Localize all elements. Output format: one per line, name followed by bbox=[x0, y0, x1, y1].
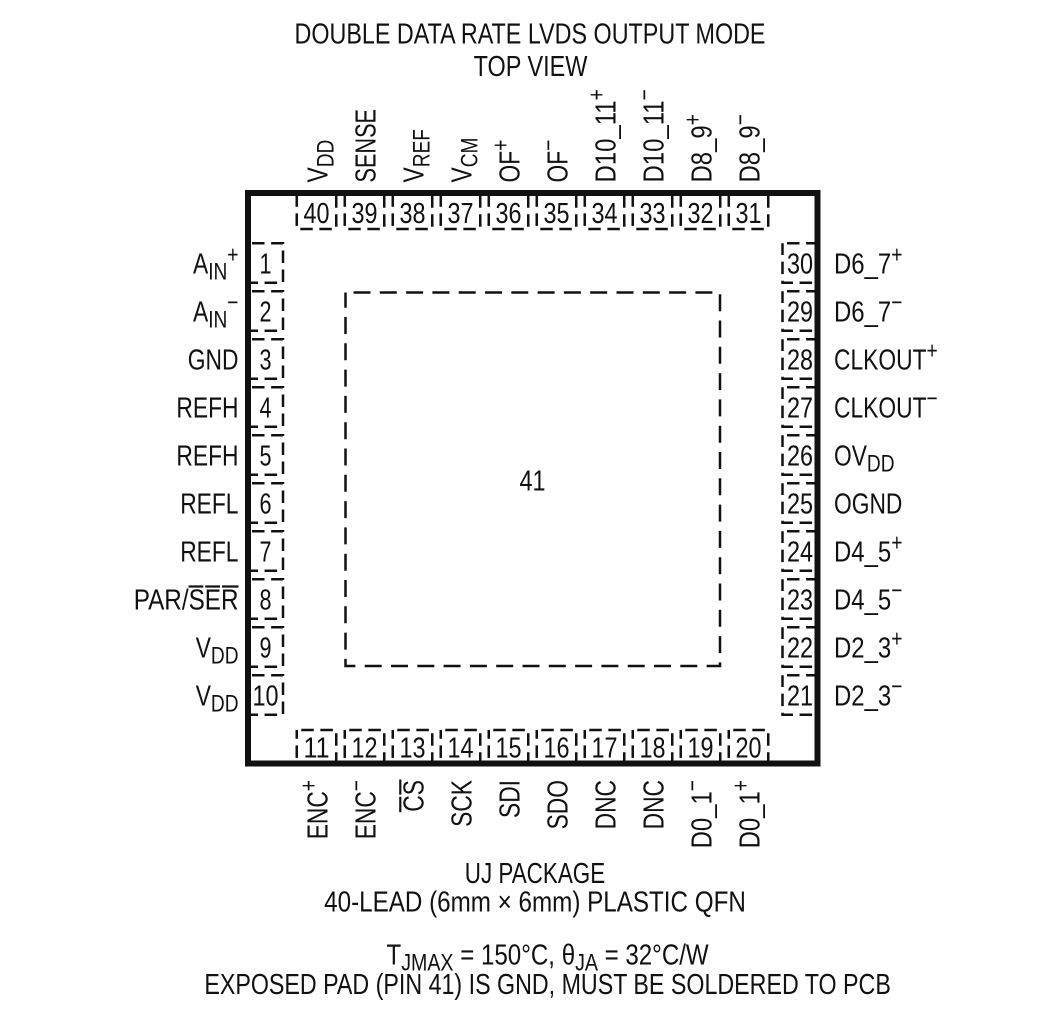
svg-text:REF: REF bbox=[409, 129, 436, 167]
svg-text:SCK: SCK bbox=[447, 780, 479, 827]
svg-text:D10_11: D10_11 bbox=[591, 100, 623, 182]
svg-text:TOP VIEW: TOP VIEW bbox=[474, 51, 588, 83]
svg-text:+: + bbox=[680, 114, 707, 125]
svg-text:−: − bbox=[891, 674, 902, 701]
svg-text:REFH: REFH bbox=[176, 441, 238, 473]
svg-text:21: 21 bbox=[787, 681, 813, 713]
svg-text:5: 5 bbox=[260, 441, 272, 473]
svg-text:REFL: REFL bbox=[180, 489, 238, 521]
svg-text:+: + bbox=[891, 242, 902, 269]
svg-text:D0_1: D0_1 bbox=[735, 791, 767, 848]
svg-text:T: T bbox=[387, 939, 402, 971]
svg-text:+: + bbox=[296, 780, 323, 791]
svg-text:−: − bbox=[728, 114, 755, 125]
svg-text:+: + bbox=[584, 89, 611, 100]
svg-text:UJ PACKAGE: UJ PACKAGE bbox=[465, 858, 605, 890]
svg-text:8: 8 bbox=[260, 585, 272, 617]
svg-text:20: 20 bbox=[736, 733, 762, 765]
svg-text:A: A bbox=[193, 249, 208, 281]
svg-text:DD: DD bbox=[211, 691, 239, 718]
svg-text:PAR/SER: PAR/SER bbox=[134, 585, 239, 617]
svg-text:−: − bbox=[927, 386, 938, 413]
svg-text:7: 7 bbox=[260, 537, 272, 569]
svg-text:CLKOUT: CLKOUT bbox=[834, 393, 927, 425]
svg-text:SDO: SDO bbox=[543, 780, 575, 829]
svg-text:+: + bbox=[728, 780, 755, 791]
svg-text:D10_11: D10_11 bbox=[639, 100, 671, 182]
svg-text:16: 16 bbox=[544, 733, 570, 765]
svg-text:GND: GND bbox=[188, 345, 239, 377]
svg-text:D4_5: D4_5 bbox=[834, 537, 891, 569]
svg-text:CLKOUT: CLKOUT bbox=[834, 345, 927, 377]
svg-text:17: 17 bbox=[592, 733, 618, 765]
svg-text:REFL: REFL bbox=[180, 537, 238, 569]
svg-text:REFH: REFH bbox=[176, 393, 238, 425]
svg-text:ENC: ENC bbox=[303, 791, 335, 839]
svg-text:IN: IN bbox=[208, 307, 227, 334]
svg-text:4: 4 bbox=[260, 393, 272, 425]
svg-text:CM: CM bbox=[457, 138, 484, 168]
svg-text:= 32°C/W: = 32°C/W bbox=[598, 939, 709, 971]
svg-text:14: 14 bbox=[448, 733, 474, 765]
svg-text:−: − bbox=[344, 780, 371, 791]
svg-text:36: 36 bbox=[496, 198, 522, 230]
svg-text:40-LEAD (6mm × 6mm) PLASTIC QF: 40-LEAD (6mm × 6mm) PLASTIC QFN bbox=[324, 887, 746, 919]
svg-text:D0_1: D0_1 bbox=[687, 791, 719, 848]
svg-text:DD: DD bbox=[211, 643, 239, 670]
svg-text:−: − bbox=[891, 578, 902, 605]
svg-text:D4_5: D4_5 bbox=[834, 585, 891, 617]
svg-text:= 150°C,: = 150°C, bbox=[454, 939, 562, 971]
svg-text:SDI: SDI bbox=[495, 780, 527, 818]
svg-text:25: 25 bbox=[787, 489, 813, 521]
svg-text:10: 10 bbox=[253, 681, 279, 713]
svg-text:−: − bbox=[632, 89, 659, 100]
svg-text:31: 31 bbox=[736, 198, 762, 230]
svg-text:32: 32 bbox=[688, 198, 714, 230]
svg-text:V: V bbox=[196, 633, 211, 665]
svg-text:+: + bbox=[927, 338, 938, 365]
svg-text:OGND: OGND bbox=[834, 489, 902, 521]
svg-text:A: A bbox=[193, 297, 208, 329]
svg-text:D6_7: D6_7 bbox=[834, 249, 891, 281]
svg-text:−: − bbox=[680, 780, 707, 791]
svg-text:ENC: ENC bbox=[351, 791, 383, 839]
svg-text:EXPOSED PAD (PIN 41) IS GND, M: EXPOSED PAD (PIN 41) IS GND, MUST BE SOL… bbox=[204, 969, 891, 1001]
svg-text:V: V bbox=[399, 167, 431, 182]
svg-text:3: 3 bbox=[260, 345, 272, 377]
svg-text:2: 2 bbox=[260, 297, 272, 329]
svg-text:34: 34 bbox=[592, 198, 618, 230]
svg-text:SENSE: SENSE bbox=[351, 109, 383, 183]
svg-text:38: 38 bbox=[400, 198, 426, 230]
svg-text:V: V bbox=[196, 681, 211, 713]
svg-text:35: 35 bbox=[544, 198, 570, 230]
svg-text:12: 12 bbox=[352, 733, 378, 765]
svg-text:15: 15 bbox=[496, 733, 522, 765]
svg-text:θ: θ bbox=[562, 939, 575, 971]
svg-text:1: 1 bbox=[260, 249, 272, 281]
svg-text:OF: OF bbox=[543, 151, 575, 183]
svg-text:D2_3: D2_3 bbox=[834, 681, 891, 713]
svg-text:DNC: DNC bbox=[591, 780, 623, 829]
svg-text:22: 22 bbox=[787, 633, 813, 665]
svg-text:13: 13 bbox=[400, 733, 426, 765]
svg-text:41: 41 bbox=[520, 466, 546, 498]
svg-text:11: 11 bbox=[304, 733, 330, 765]
svg-text:18: 18 bbox=[640, 733, 666, 765]
svg-text:+: + bbox=[488, 140, 515, 151]
svg-text:19: 19 bbox=[688, 733, 714, 765]
svg-text:26: 26 bbox=[787, 441, 813, 473]
svg-text:D8_9: D8_9 bbox=[687, 125, 719, 182]
svg-text:DNC: DNC bbox=[639, 780, 671, 829]
svg-text:27: 27 bbox=[787, 393, 813, 425]
svg-text:24: 24 bbox=[787, 537, 813, 569]
svg-text:D8_9: D8_9 bbox=[735, 125, 767, 182]
svg-text:33: 33 bbox=[640, 198, 666, 230]
svg-text:29: 29 bbox=[787, 297, 813, 329]
svg-text:IN: IN bbox=[208, 259, 227, 286]
svg-text:+: + bbox=[891, 626, 902, 653]
svg-text:CS: CS bbox=[399, 780, 431, 812]
svg-text:39: 39 bbox=[352, 198, 378, 230]
svg-text:−: − bbox=[227, 290, 238, 317]
svg-text:9: 9 bbox=[260, 633, 272, 665]
svg-text:D6_7: D6_7 bbox=[834, 297, 891, 329]
svg-text:37: 37 bbox=[448, 198, 474, 230]
svg-text:DD: DD bbox=[313, 140, 340, 168]
svg-text:+: + bbox=[227, 242, 238, 269]
svg-text:OF: OF bbox=[495, 151, 527, 183]
svg-text:23: 23 bbox=[787, 585, 813, 617]
svg-text:DD: DD bbox=[867, 451, 895, 478]
svg-text:−: − bbox=[891, 290, 902, 317]
svg-text:−: − bbox=[536, 140, 563, 151]
svg-text:6: 6 bbox=[260, 489, 272, 521]
svg-text:28: 28 bbox=[787, 345, 813, 377]
svg-text:OV: OV bbox=[834, 441, 867, 473]
svg-text:30: 30 bbox=[787, 249, 813, 281]
svg-text:40: 40 bbox=[304, 198, 330, 230]
svg-text:V: V bbox=[447, 167, 479, 182]
svg-text:DOUBLE DATA RATE LVDS OUTPUT M: DOUBLE DATA RATE LVDS OUTPUT MODE bbox=[295, 19, 766, 51]
svg-text:+: + bbox=[891, 530, 902, 557]
svg-text:V: V bbox=[303, 167, 335, 182]
svg-text:D2_3: D2_3 bbox=[834, 633, 891, 665]
